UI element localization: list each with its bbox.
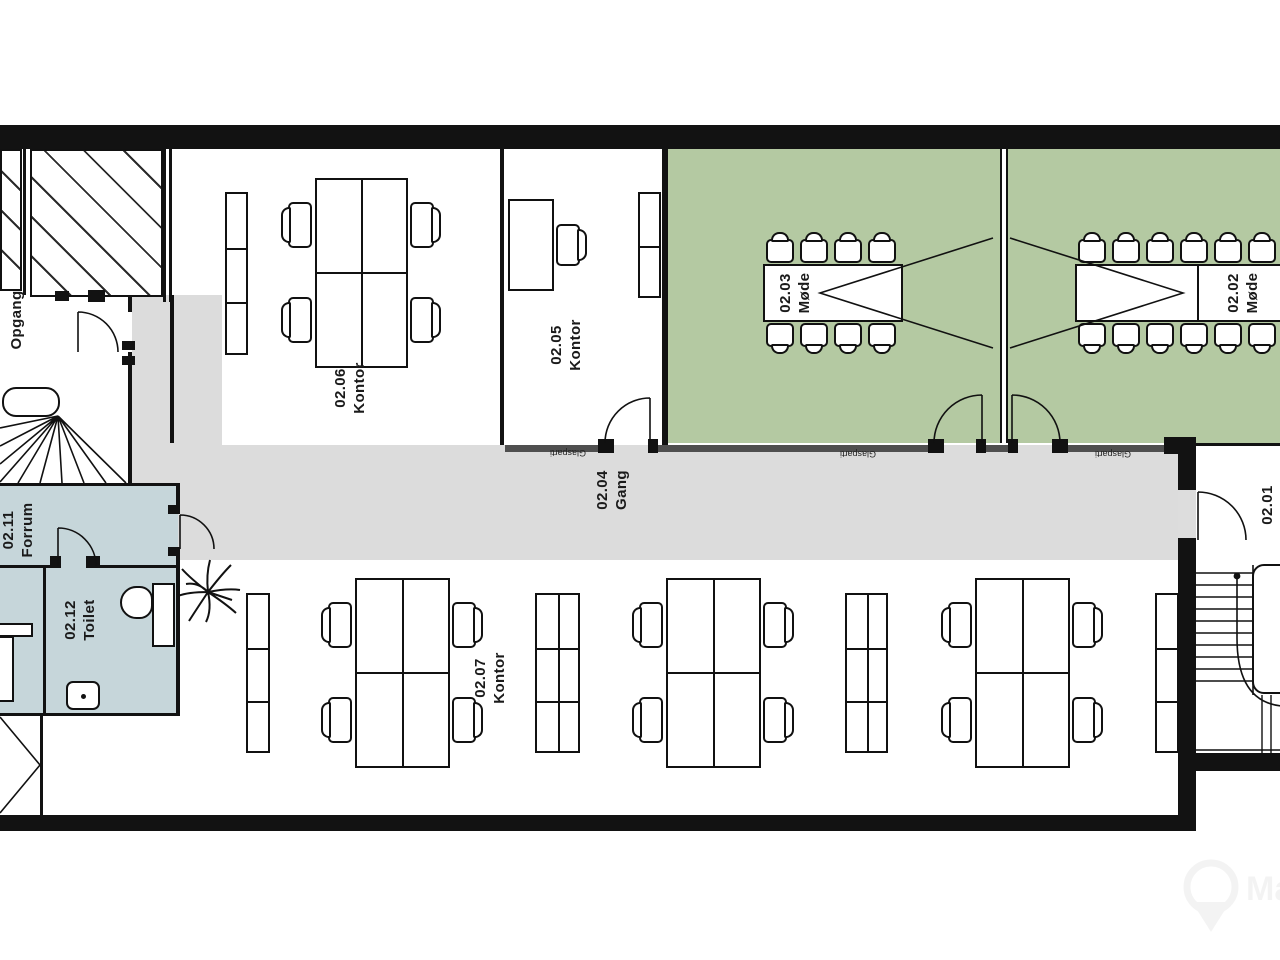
cabinet	[225, 192, 248, 355]
door-arc-landing	[78, 312, 118, 352]
conference-chair	[1078, 323, 1106, 347]
sink	[66, 681, 100, 710]
room-number: 02.06	[331, 368, 351, 408]
office-chair	[410, 297, 434, 343]
wall-toilet-bottom	[0, 713, 180, 716]
wall-shaft-divider	[23, 149, 26, 295]
conference-chair	[868, 239, 896, 263]
door-post	[55, 291, 69, 301]
corridor-gang-floor	[222, 445, 1178, 560]
shaft-hatched-small	[0, 149, 22, 291]
cabinet	[845, 593, 888, 753]
cabinet	[535, 593, 580, 753]
wall-partition-0203-a	[1000, 149, 1002, 443]
stairs-opgang	[0, 388, 126, 483]
room-label-0205: 02.05 Kontor	[543, 300, 589, 390]
counter-column	[0, 636, 14, 702]
conference-chair	[766, 239, 794, 263]
office-chair	[328, 602, 352, 648]
glass-wall-segment	[986, 445, 1008, 452]
desk-group	[975, 578, 1070, 768]
door-post	[168, 547, 180, 556]
conference-chair	[1112, 239, 1140, 263]
door-pivot	[648, 439, 658, 453]
office-chair	[410, 202, 434, 248]
room-name: Kontor	[566, 319, 586, 371]
counter-shelf	[0, 623, 33, 637]
toilet-bowl	[120, 586, 153, 619]
wall-partition-0203-b	[1006, 149, 1008, 443]
door-handle	[1052, 439, 1068, 453]
conference-chair	[1214, 239, 1242, 263]
door-arc-0205	[605, 398, 650, 443]
office-chair	[763, 602, 787, 648]
glasparti-label-0205: Glasparti	[538, 448, 598, 458]
room-number: 02.05	[547, 325, 567, 365]
door-pivot	[976, 439, 986, 453]
office-chair	[556, 224, 580, 266]
room-label-0211: 02.11 Forrum	[0, 488, 41, 572]
office-chair	[948, 602, 972, 648]
office-chair	[288, 297, 312, 343]
conference-chair	[834, 239, 862, 263]
glasparti-label-0202: Glasparti	[1083, 449, 1143, 459]
cabinet	[638, 192, 661, 298]
wall-bottom	[0, 815, 1196, 831]
room-name: Opgang	[7, 290, 27, 349]
door-post	[122, 356, 135, 365]
room-label-0212: 02.12 Toilet	[57, 578, 103, 662]
room-name: Gang	[612, 470, 632, 510]
wall-shaft-right-b	[169, 149, 172, 302]
conference-chair	[1180, 323, 1208, 347]
wall-toilet-right	[176, 567, 180, 715]
office-chair	[288, 202, 312, 248]
room-name: Møde	[795, 273, 815, 314]
wall-landing-b	[170, 295, 174, 443]
conference-chair	[868, 323, 896, 347]
office-chair	[1072, 602, 1096, 648]
conference-chair	[1248, 239, 1276, 263]
room-number: 02.03	[776, 273, 796, 313]
plant	[178, 560, 240, 622]
conference-chair	[800, 323, 828, 347]
conference-chair	[834, 323, 862, 347]
door-arc-0201	[1198, 492, 1246, 540]
door-post	[88, 290, 105, 302]
door-post	[168, 505, 180, 514]
desk-group	[666, 578, 761, 768]
wall-forrum-top	[0, 483, 180, 486]
wall-xshaft-right	[40, 715, 43, 815]
room-label-0206: 02.06 Kontor	[327, 343, 373, 433]
room-name: Forrum	[18, 503, 38, 558]
conference-chair	[1180, 239, 1208, 263]
room-name: Kontor	[350, 362, 370, 414]
toilet-cistern	[152, 583, 175, 647]
wall-landing-a2	[128, 352, 132, 485]
cabinet	[246, 593, 270, 753]
wall-landing-a1	[128, 295, 132, 312]
watermark-pin-icon: Ma	[1187, 863, 1280, 932]
wall-toilet-left	[43, 565, 46, 715]
room-label-0201: 02.01	[1258, 477, 1278, 533]
conference-chair	[1248, 323, 1276, 347]
door-post	[122, 341, 135, 350]
room-number: 02.01	[1258, 485, 1278, 525]
conference-chair	[766, 323, 794, 347]
office-chair	[1072, 697, 1096, 743]
conference-chair	[800, 239, 828, 263]
room-label-0203: 02.03 Møde	[773, 265, 817, 321]
office-chair	[639, 602, 663, 648]
office-chair	[763, 697, 787, 743]
wall-shaft-right-a	[163, 149, 166, 302]
conference-chair	[1146, 323, 1174, 347]
desk-group	[315, 178, 408, 368]
room-label-0207: 02.07 Kontor	[467, 633, 513, 723]
cabinet	[1155, 593, 1179, 753]
office-chair	[639, 697, 663, 743]
door-post	[50, 556, 61, 568]
room-label-opgang: Opgang	[7, 285, 27, 355]
door-pivot	[1008, 439, 1018, 453]
wall-toilet-top-b	[98, 565, 180, 568]
wall-junction-piece	[1164, 437, 1196, 454]
office-chair	[328, 697, 352, 743]
desk-group	[355, 578, 450, 768]
room-label-0202: 02.02 Møde	[1221, 265, 1265, 321]
office-chair	[948, 697, 972, 743]
wall-right-stair-bottom	[1196, 753, 1280, 771]
room-name: Kontor	[490, 652, 510, 704]
room-name: Toilet	[80, 599, 100, 640]
shaft-hatched-large	[30, 149, 163, 297]
room-number: 02.11	[0, 511, 18, 550]
conference-chair	[1112, 323, 1140, 347]
room-number: 02.04	[593, 470, 613, 510]
floor-plan: Ma 02.06 Kontor 02.05 Kontor 02.04 Gang …	[0, 0, 1280, 960]
room-number: 02.07	[471, 658, 491, 698]
conference-chair	[1146, 239, 1174, 263]
room-name: Møde	[1243, 273, 1263, 314]
door-post	[86, 556, 100, 568]
door-gap-0201	[1178, 490, 1196, 538]
conference-chair	[1214, 323, 1242, 347]
desk	[508, 199, 554, 291]
room-label-0204: 02.04 Gang	[589, 450, 635, 530]
wall-0205-right	[662, 149, 668, 445]
conference-chair	[1078, 239, 1106, 263]
room-number: 02.02	[1224, 273, 1244, 313]
wall-0201-top	[1196, 443, 1280, 446]
shaft-chevron	[0, 717, 40, 813]
stairs-0201	[1196, 565, 1280, 753]
door-handle	[928, 439, 944, 453]
wall-0205-left	[500, 149, 504, 445]
glasparti-label-0203: Glasparti	[828, 449, 888, 459]
watermark-text: Ma	[1246, 870, 1280, 908]
wall-top	[0, 125, 1280, 149]
room-number: 02.12	[61, 600, 81, 640]
